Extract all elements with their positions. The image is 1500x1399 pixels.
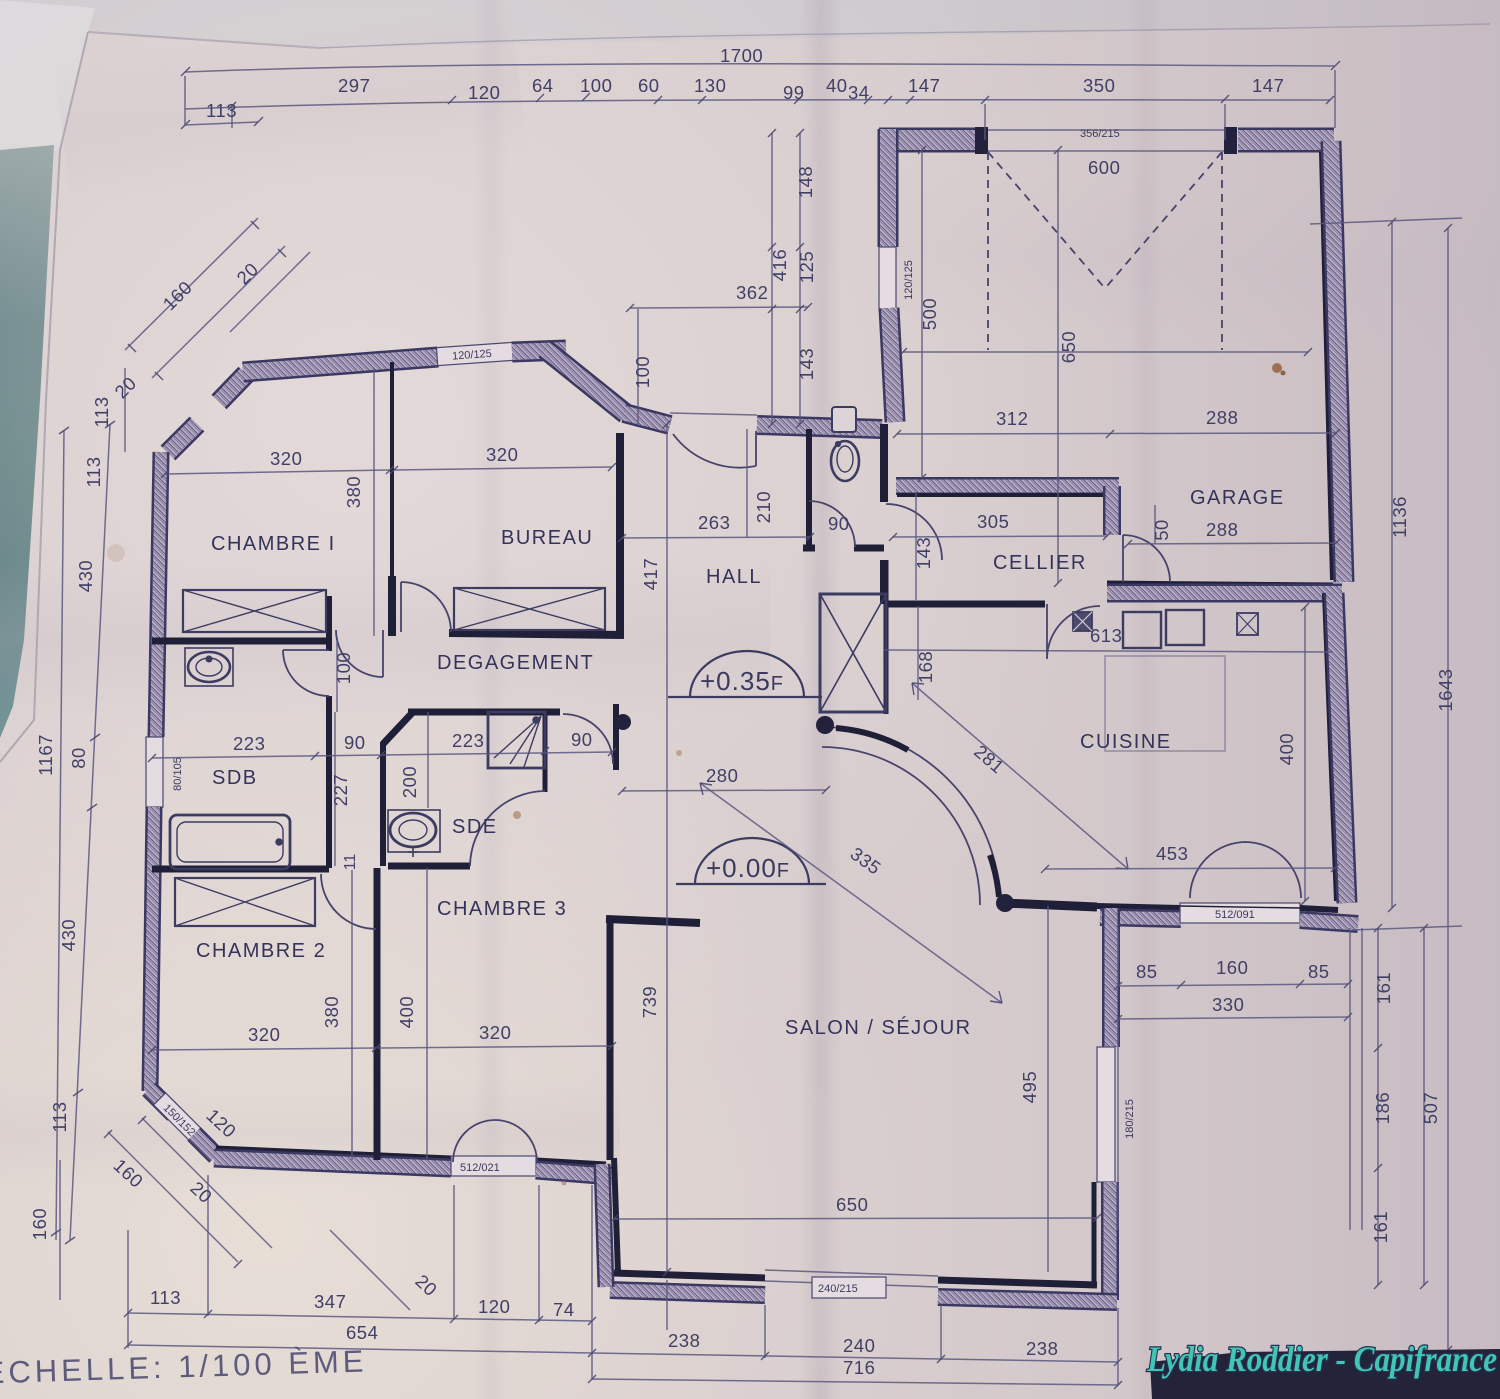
- svg-text:100: 100: [333, 652, 354, 684]
- svg-text:90: 90: [828, 513, 850, 534]
- svg-text:600: 600: [1088, 157, 1120, 178]
- svg-text:90: 90: [344, 732, 366, 753]
- svg-text:356/215: 356/215: [1080, 128, 1120, 140]
- svg-text:240: 240: [843, 1335, 875, 1356]
- svg-text:512/021: 512/021: [460, 1162, 500, 1174]
- svg-text:288: 288: [1206, 519, 1238, 540]
- svg-text:380: 380: [343, 476, 364, 508]
- svg-text:50: 50: [1151, 519, 1172, 541]
- svg-text:180/215: 180/215: [1124, 1099, 1136, 1139]
- svg-text:1167: 1167: [35, 734, 56, 776]
- svg-text:453: 453: [1156, 843, 1188, 864]
- svg-text:200: 200: [399, 766, 420, 798]
- svg-text:113: 113: [206, 100, 237, 121]
- svg-text:739: 739: [639, 986, 660, 1018]
- svg-text:350: 350: [1083, 75, 1115, 96]
- svg-text:SALON / SÉJOUR: SALON / SÉJOUR: [785, 1016, 972, 1039]
- svg-text:613: 613: [1090, 625, 1122, 646]
- svg-text:120: 120: [468, 82, 500, 103]
- svg-text:113: 113: [91, 397, 112, 428]
- svg-text:125: 125: [796, 251, 817, 283]
- svg-text:113: 113: [83, 457, 104, 488]
- svg-text:CHAMBRE I: CHAMBRE I: [211, 533, 336, 555]
- svg-text:320: 320: [270, 448, 302, 469]
- svg-text:512/091: 512/091: [1215, 909, 1255, 921]
- svg-text:320: 320: [479, 1022, 511, 1043]
- svg-text:500: 500: [919, 298, 940, 330]
- svg-text:113: 113: [150, 1287, 181, 1308]
- svg-text:1136: 1136: [1389, 496, 1410, 538]
- svg-text:120/125: 120/125: [903, 260, 915, 300]
- svg-text:238: 238: [668, 1330, 700, 1351]
- svg-text:120: 120: [478, 1296, 510, 1317]
- svg-text:1643: 1643: [1435, 668, 1456, 711]
- svg-text:74: 74: [553, 1299, 575, 1320]
- svg-text:99: 99: [783, 82, 805, 103]
- svg-text:280: 280: [706, 765, 738, 786]
- svg-text:430: 430: [75, 560, 96, 592]
- svg-text:716: 716: [843, 1357, 875, 1378]
- svg-text:654: 654: [346, 1322, 378, 1343]
- svg-text:416: 416: [769, 249, 790, 281]
- svg-text:168: 168: [915, 651, 936, 683]
- svg-text:161: 161: [1370, 1211, 1391, 1243]
- svg-text:113: 113: [49, 1102, 70, 1133]
- svg-text:100: 100: [580, 75, 612, 96]
- svg-text:495: 495: [1019, 1071, 1040, 1103]
- svg-text:160: 160: [1216, 957, 1248, 978]
- svg-text:148: 148: [795, 166, 816, 198]
- svg-text:143: 143: [796, 348, 817, 380]
- svg-text:650: 650: [836, 1194, 868, 1215]
- svg-text:507: 507: [1420, 1092, 1441, 1124]
- svg-text:130: 130: [694, 75, 726, 96]
- svg-text:347: 347: [314, 1291, 346, 1312]
- svg-text:CELLIER: CELLIER: [993, 552, 1087, 574]
- svg-text:263: 263: [698, 512, 730, 533]
- svg-text:90: 90: [571, 729, 593, 750]
- svg-text:CUISINE: CUISINE: [1080, 731, 1172, 753]
- svg-text:362: 362: [736, 282, 768, 303]
- svg-text:80: 80: [68, 747, 89, 769]
- svg-text:320: 320: [486, 444, 518, 465]
- svg-text:34: 34: [848, 82, 870, 103]
- svg-text:400: 400: [1276, 733, 1297, 765]
- svg-text:100: 100: [632, 356, 653, 388]
- svg-text:400: 400: [396, 996, 417, 1028]
- svg-text:223: 223: [452, 730, 484, 751]
- svg-text:SDB: SDB: [212, 767, 258, 789]
- svg-text:60: 60: [638, 75, 660, 96]
- svg-text:312: 312: [996, 408, 1028, 429]
- svg-text:SDE: SDE: [452, 816, 498, 838]
- svg-text:40: 40: [826, 75, 848, 96]
- svg-text:GARAGE: GARAGE: [1190, 487, 1285, 509]
- svg-text:CHAMBRE 2: CHAMBRE 2: [196, 940, 326, 962]
- svg-text:64: 64: [532, 75, 554, 96]
- svg-text:186: 186: [1372, 1092, 1393, 1124]
- svg-text:143: 143: [913, 537, 934, 569]
- svg-text:320: 320: [248, 1024, 280, 1045]
- svg-text:210: 210: [753, 491, 774, 523]
- svg-text:650: 650: [1058, 331, 1079, 363]
- svg-text:1700: 1700: [720, 45, 763, 66]
- svg-text:380: 380: [321, 996, 342, 1028]
- svg-text:330: 330: [1212, 994, 1244, 1015]
- svg-text:80/105: 80/105: [172, 757, 184, 791]
- svg-text:297: 297: [338, 75, 370, 96]
- svg-text:417: 417: [640, 558, 661, 590]
- svg-text:147: 147: [908, 75, 940, 96]
- svg-text:161: 161: [1373, 972, 1394, 1004]
- svg-text:227: 227: [330, 774, 351, 806]
- svg-text:147: 147: [1252, 75, 1284, 96]
- svg-text:288: 288: [1206, 407, 1238, 428]
- svg-text:11: 11: [342, 854, 359, 871]
- svg-text:85: 85: [1136, 961, 1158, 982]
- svg-text:85: 85: [1308, 961, 1330, 982]
- svg-text:223: 223: [233, 733, 265, 754]
- svg-text:430: 430: [58, 919, 79, 951]
- svg-text:240/215: 240/215: [818, 1283, 858, 1295]
- svg-text:BUREAU: BUREAU: [501, 527, 593, 549]
- svg-text:238: 238: [1026, 1338, 1058, 1359]
- svg-text:HALL: HALL: [706, 566, 762, 588]
- svg-text:DEGAGEMENT: DEGAGEMENT: [437, 652, 594, 674]
- svg-text:Lydia Roddier - Capifrance: Lydia Roddier - Capifrance: [1146, 1339, 1497, 1379]
- svg-text:160: 160: [29, 1208, 50, 1240]
- svg-text:CHAMBRE 3: CHAMBRE 3: [437, 898, 567, 920]
- svg-text:305: 305: [977, 511, 1009, 532]
